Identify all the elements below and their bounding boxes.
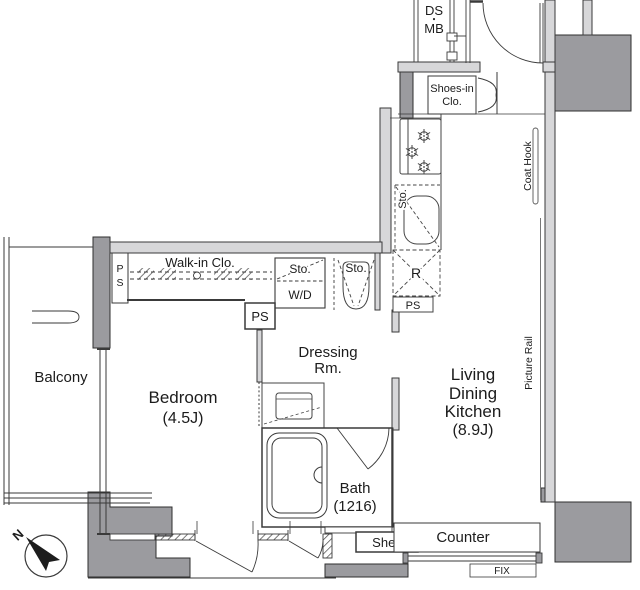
- ldk-label-2: Dining: [449, 384, 497, 403]
- fridge-label: R: [411, 265, 421, 281]
- column-balcony: [93, 237, 110, 348]
- wall-toilet-kitchen: [375, 253, 380, 310]
- ldk-size-label: (8.9J): [453, 422, 494, 439]
- column-bottom-right: [555, 502, 631, 562]
- wall-top-strip: [583, 0, 592, 35]
- floor-plan: DS ・ MB Shoes-in Clo.: [0, 0, 640, 590]
- ldk-label-1: Living: [451, 365, 495, 384]
- balcony-label: Balcony: [34, 369, 88, 386]
- bedroom-size-label: (4.5J): [163, 410, 204, 427]
- ldk-label-3: Kitchen: [445, 402, 502, 421]
- dressing-label-2: Rm.: [314, 360, 342, 377]
- wall-bottom-band: [325, 564, 408, 577]
- wall-entry: [398, 62, 480, 72]
- coat-hook-label: Coat Hook: [522, 140, 534, 190]
- ps-kitchen-label: PS: [406, 300, 421, 312]
- wall-entry-right: [543, 62, 555, 72]
- wall-dressing-ldk-a: [392, 310, 399, 332]
- column-entry: [400, 72, 413, 118]
- bath-size-label: (1216): [333, 498, 376, 515]
- counter-label: Counter: [436, 529, 489, 546]
- sto-toilet-label: Sto.: [345, 261, 366, 275]
- dressing-label-1: Dressing: [298, 344, 357, 361]
- ps-walkin-p: P: [116, 263, 123, 275]
- bath-label: Bath: [340, 480, 371, 497]
- sto-wd-label: Sto.: [289, 262, 310, 276]
- ps-mid-label: PS: [251, 309, 269, 324]
- mb-label: MB: [424, 21, 444, 36]
- bath: [262, 428, 392, 533]
- wall-bedroom-dressing: [257, 330, 262, 382]
- stove-icon: [400, 119, 441, 174]
- wall-dressing-ldk-b: [392, 378, 399, 430]
- fix-label: FIX: [494, 566, 510, 577]
- walkin-label: Walk-in Clo.: [165, 255, 235, 270]
- picture-rail-label: Picture Rail: [523, 336, 535, 390]
- wall-kitchen-west: [380, 108, 391, 253]
- wd-label: W/D: [288, 288, 312, 302]
- shoes-label-2: Clo.: [442, 96, 462, 108]
- ps-walkin-s: S: [116, 277, 123, 289]
- shoes-label-1: Shoes-in: [430, 83, 473, 95]
- sto-kitchen-label: Sto.: [397, 189, 409, 209]
- compass-icon: [25, 535, 67, 577]
- column-top-right: [553, 35, 631, 111]
- washbasin-icon: [262, 383, 324, 428]
- wall-east: [545, 0, 555, 502]
- wall-walkin-north: [110, 242, 382, 253]
- bedroom-label: Bedroom: [149, 388, 218, 407]
